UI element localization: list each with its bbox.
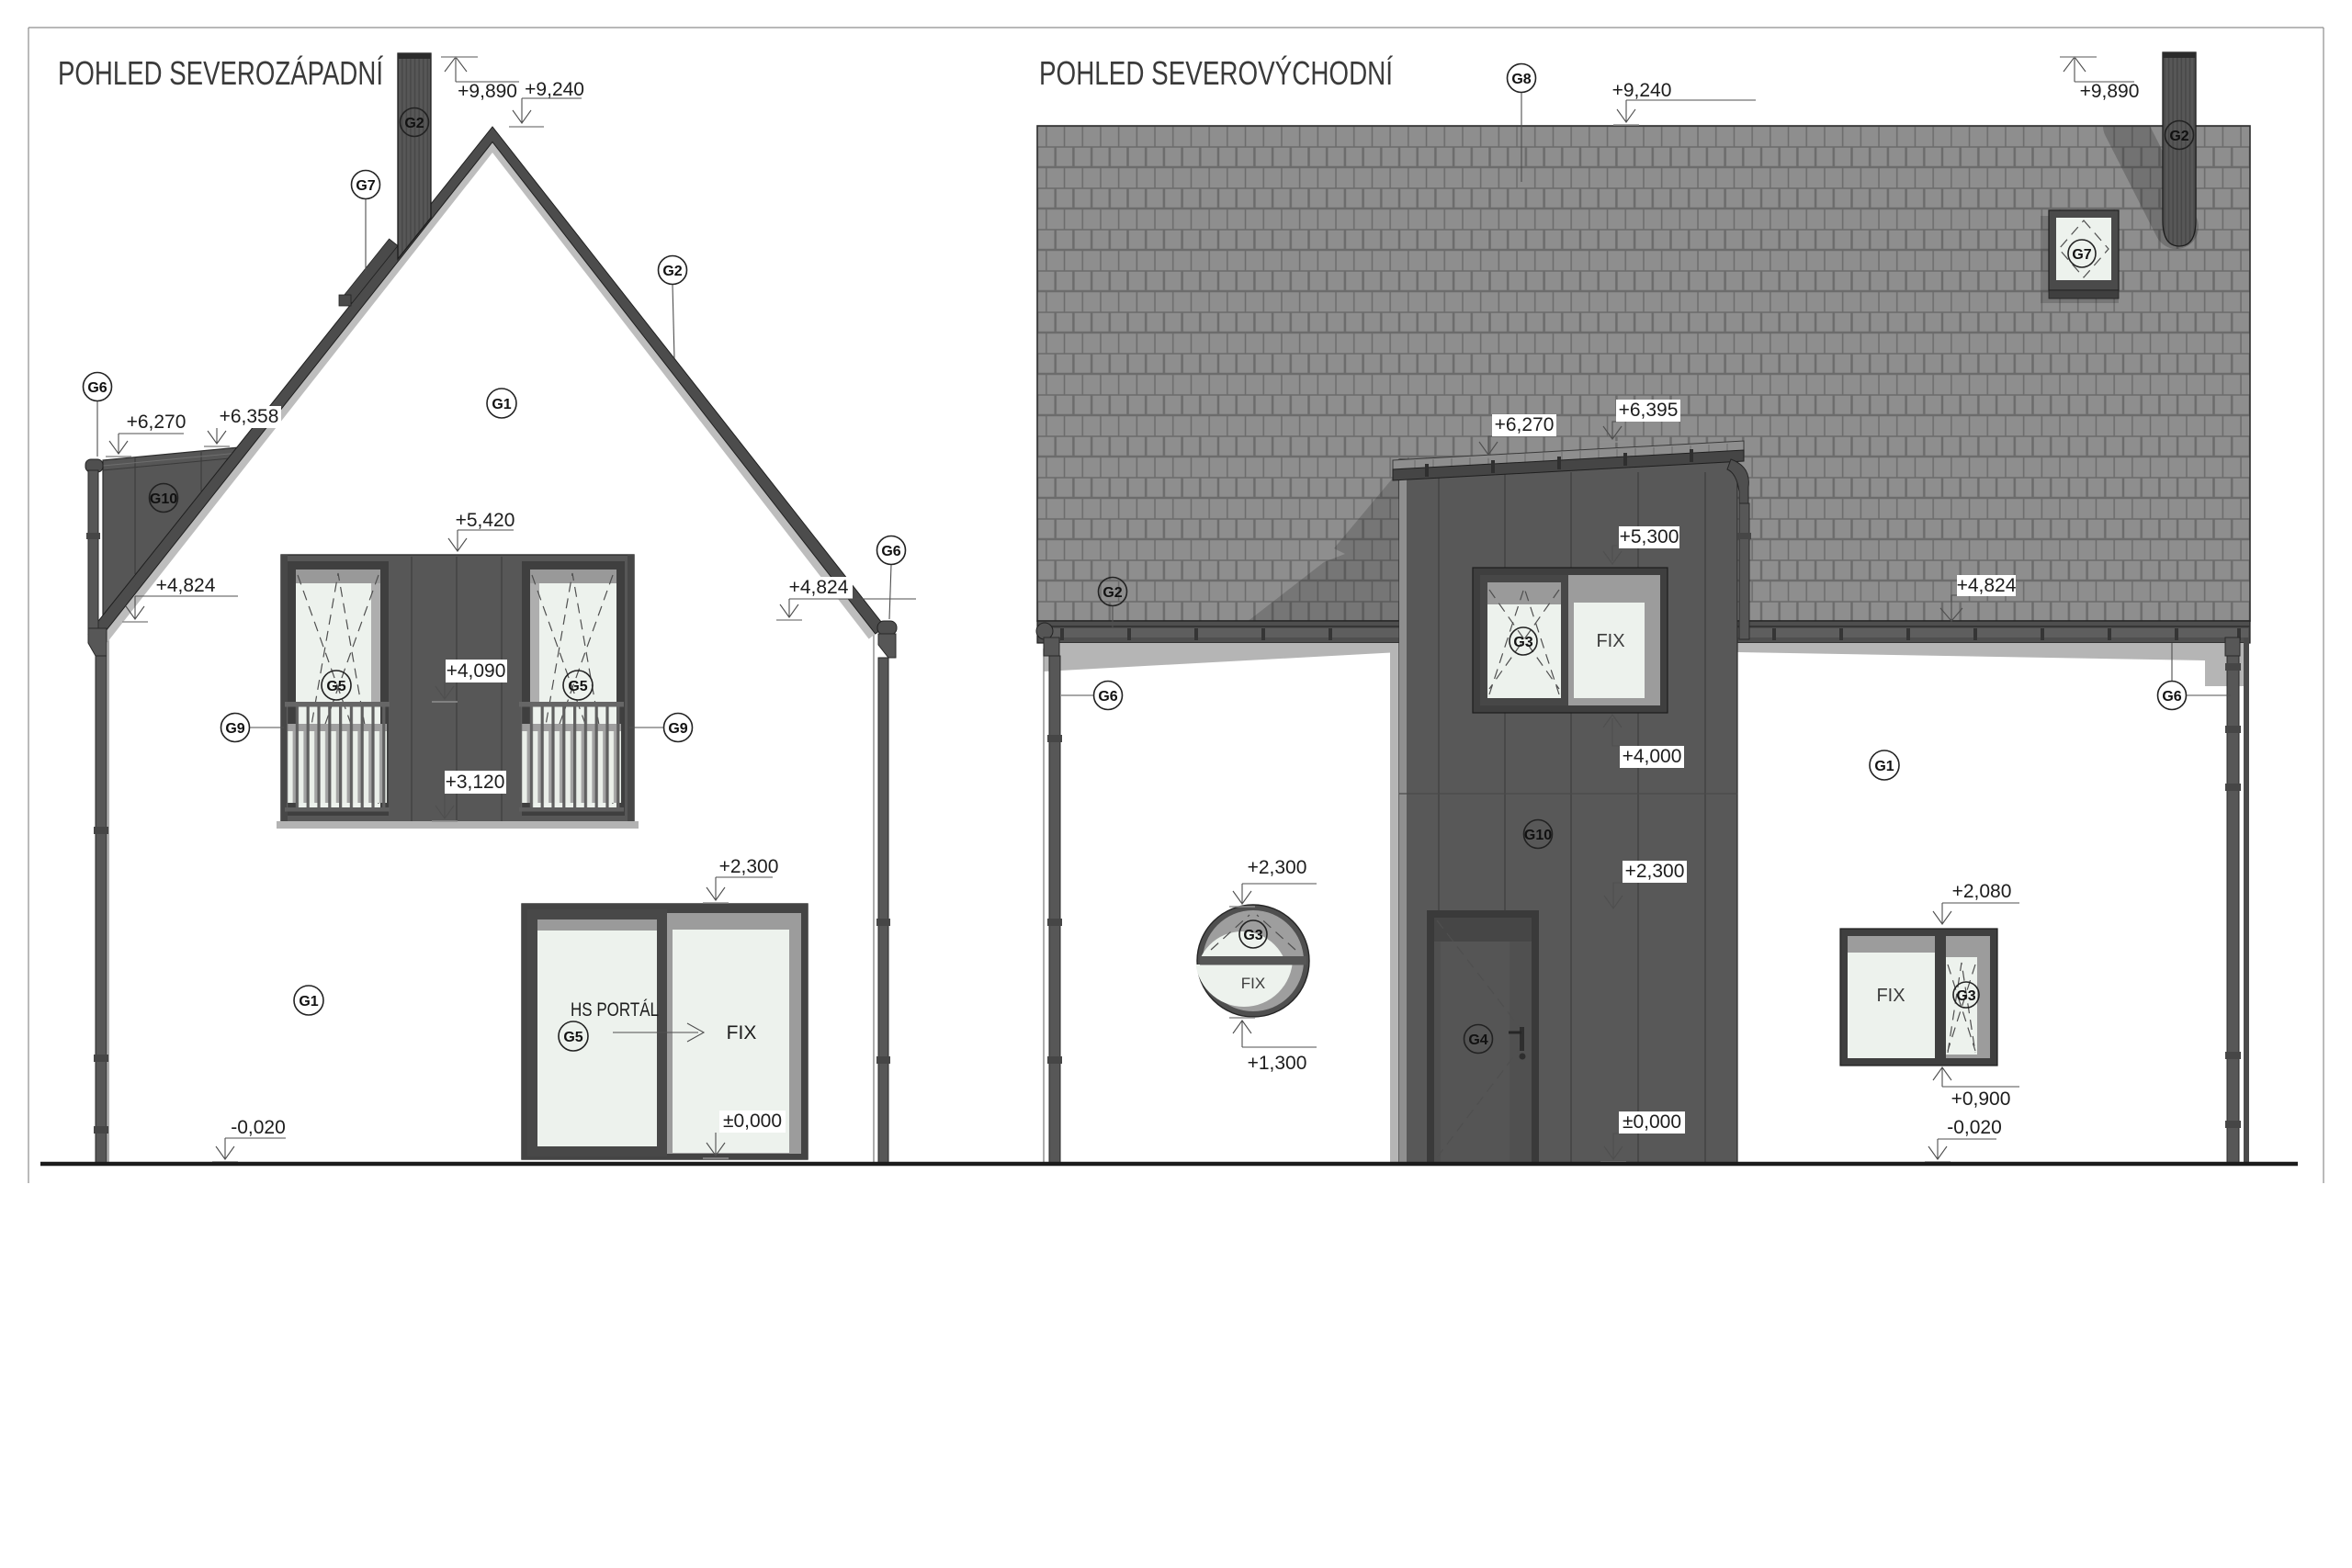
svg-text:G5: G5 [326,679,345,694]
svg-text:±0,000: ±0,000 [1623,1111,1681,1133]
svg-text:±0,000: ±0,000 [723,1111,782,1132]
svg-text:G10: G10 [150,491,177,507]
svg-text:G6: G6 [881,544,900,559]
svg-text:+9,890: +9,890 [2080,81,2140,102]
svg-text:FIX: FIX [1876,986,1905,1006]
svg-text:G2: G2 [662,264,682,279]
svg-text:G3: G3 [1513,635,1532,650]
svg-text:G7: G7 [2072,247,2091,263]
svg-text:+1,300: +1,300 [1248,1053,1307,1074]
svg-text:G1: G1 [1874,759,1894,774]
svg-text:G6: G6 [1098,689,1117,705]
svg-text:G4: G4 [1468,1032,1487,1048]
svg-text:HS PORTÁL: HS PORTÁL [571,999,659,1021]
svg-text:G7: G7 [356,178,375,194]
svg-text:G3: G3 [1956,988,1975,1004]
svg-text:G10: G10 [1524,828,1552,843]
svg-text:+4,824: +4,824 [1957,575,2017,596]
svg-text:+4,824: +4,824 [156,575,216,596]
svg-text:+6,358: +6,358 [220,406,279,427]
svg-text:+2,080: +2,080 [1952,881,2012,902]
svg-text:+9,240: +9,240 [525,79,584,100]
svg-text:G1: G1 [492,397,511,412]
svg-text:POHLED SEVEROVÝCHODNÍ: POHLED SEVEROVÝCHODNÍ [1039,54,1393,92]
svg-text:+3,120: +3,120 [446,772,505,793]
svg-text:FIX: FIX [1596,631,1624,651]
svg-text:+5,420: +5,420 [456,510,515,531]
svg-text:G2: G2 [1102,585,1122,601]
svg-text:+4,824: +4,824 [789,577,849,598]
svg-text:+4,090: +4,090 [447,660,506,682]
svg-text:-0,020: -0,020 [1947,1117,2002,1138]
svg-text:FIX: FIX [727,1022,757,1043]
svg-text:G5: G5 [568,679,587,694]
svg-text:+2,300: +2,300 [1248,857,1307,878]
svg-text:POHLED SEVEROZÁPADNÍ: POHLED SEVEROZÁPADNÍ [58,54,383,92]
svg-text:+9,890: +9,890 [458,81,517,102]
svg-text:+4,000: +4,000 [1623,746,1682,767]
svg-text:+6,270: +6,270 [1495,414,1555,435]
svg-text:+5,300: +5,300 [1620,526,1679,547]
svg-text:G1: G1 [299,994,318,1010]
svg-text:+0,900: +0,900 [1951,1089,2011,1110]
svg-text:-0,020: -0,020 [231,1117,286,1138]
svg-text:FIX: FIX [1241,975,1265,992]
svg-text:G8: G8 [1511,72,1531,87]
svg-text:G3: G3 [1243,928,1262,943]
svg-text:G6: G6 [87,380,107,396]
svg-text:+9,240: +9,240 [1612,80,1672,101]
svg-text:+6,395: +6,395 [1619,400,1679,421]
svg-text:G9: G9 [225,721,244,737]
svg-text:+2,300: +2,300 [1625,861,1685,882]
svg-text:G6: G6 [2162,689,2181,705]
svg-text:G5: G5 [563,1030,582,1045]
svg-text:+6,270: +6,270 [127,412,187,433]
svg-text:G2: G2 [404,116,424,131]
svg-text:+2,300: +2,300 [719,856,779,877]
svg-text:G2: G2 [2169,129,2188,144]
svg-text:G9: G9 [668,721,687,737]
